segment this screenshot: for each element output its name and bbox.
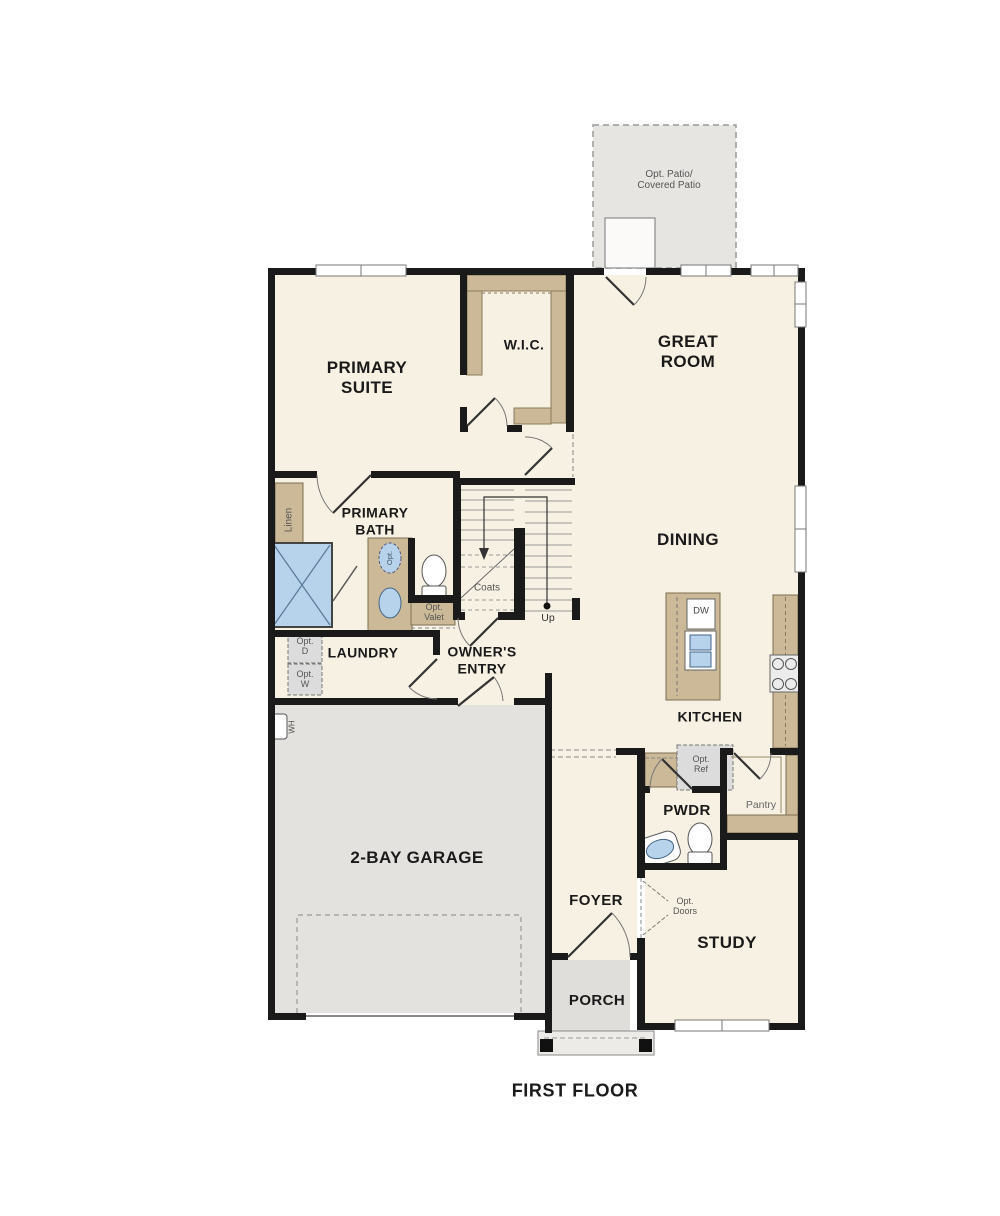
pantry-shelves [727,755,798,833]
porch-step [538,1031,654,1055]
stair-arrow [479,548,489,560]
opt-doors-study [641,878,668,938]
porch-post [639,1039,652,1052]
bath-toilet [422,555,446,600]
laundry-label: LAUNDRY [328,645,399,662]
pwdr-label: PWDR [663,802,710,820]
pantry-label: Pantry [746,800,776,812]
owners-entry-label: OWNER'S ENTRY [447,643,516,676]
dw-label: DW [693,607,709,618]
patio-door-leaf [606,277,634,305]
stair-start-dot [544,603,551,610]
foyer-label: FOYER [569,892,623,910]
wic-label: W.I.C. [504,337,545,354]
garage-entry-door-leaf [458,677,494,706]
opt-valet-label: Opt. Valet [424,602,444,622]
plan-graphics [0,0,1000,1216]
shower-door [333,566,357,601]
pwdr-toilet [688,823,712,864]
porch-post [540,1039,553,1052]
hall-door-leaf [525,448,552,475]
patio-step [605,218,655,268]
plan-title: FIRST FLOOR [512,1080,639,1101]
laundry-door-leaf [409,659,437,687]
kitchen-counter [770,595,799,748]
shower [272,543,357,627]
front-door-leaf [568,913,612,957]
sink [379,588,401,618]
opt-d-label: Opt. D [296,636,313,656]
wh-label: WH [289,720,298,733]
up-label: Up [541,613,554,625]
opt-ref-label: Opt. Ref [692,754,709,774]
ref-counter [645,745,733,790]
dining-label: DINING [657,530,719,550]
porch-label: PORCH [569,992,625,1010]
coats-label: Coats [474,582,500,593]
patio-area [593,125,736,268]
patio-label: Opt. Patio/ Covered Patio [637,169,700,191]
floor-plan: Opt. Patio/ Covered Patio PRIMARY SUITE … [0,0,1000,1216]
garage-apron [297,915,521,1013]
linen-label: Linen [283,508,294,532]
kitchen-label: KITCHEN [677,709,742,726]
garage-label: 2-BAY GARAGE [350,848,483,868]
opt-sink-label: Opt. [386,551,394,565]
coats-door-leaf [470,618,498,646]
study-label: STUDY [697,933,757,953]
great-room-label: GREAT ROOM [658,332,718,372]
wic-door-leaf [467,398,495,426]
primary-suite-label: PRIMARY SUITE [327,358,408,398]
opt-w-label: Opt. W [296,669,313,689]
opt-doors-label: Opt. Doors [673,896,697,916]
primary-bath-label: PRIMARY BATH [342,504,409,537]
